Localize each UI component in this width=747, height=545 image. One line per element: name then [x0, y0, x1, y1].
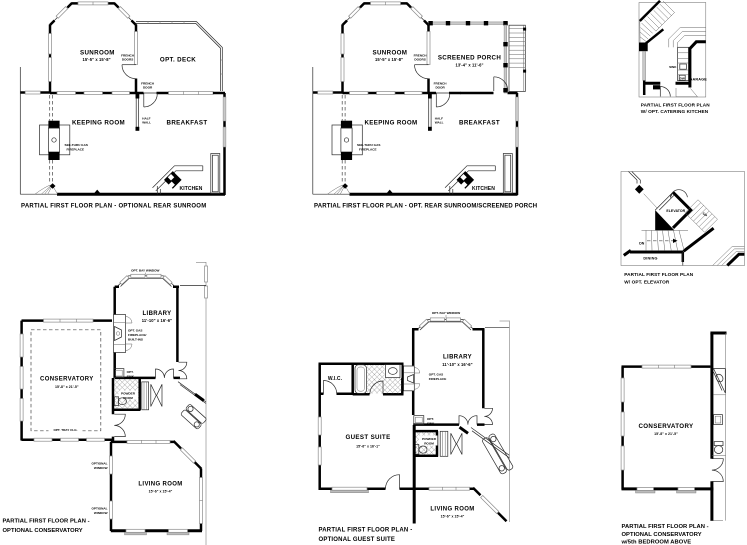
- svg-text:LIVING ROOM: LIVING ROOM: [138, 482, 182, 488]
- svg-text:DINING: DINING: [643, 256, 657, 260]
- svg-text:LIBRARY: LIBRARY: [143, 311, 172, 317]
- svg-text:PARTIAL FIRST FLOOR PLAN: PARTIAL FIRST FLOOR PLAN: [641, 102, 710, 107]
- svg-text:OPT. BAY WINDOW: OPT. BAY WINDOW: [432, 311, 460, 315]
- svg-text:OPT.: OPT.: [427, 417, 434, 421]
- svg-text:SCREENED PORCH: SCREENED PORCH: [438, 55, 502, 62]
- svg-text:DOOR: DOOR: [143, 85, 153, 89]
- svg-text:FIREPLACE: FIREPLACE: [67, 148, 85, 152]
- svg-text:WINDOW: WINDOW: [94, 466, 108, 470]
- svg-text:OPT. DECK: OPT. DECK: [160, 57, 196, 64]
- svg-text:PARTIAL FIRST FLOOR PLAN -: PARTIAL FIRST FLOOR PLAN -: [319, 528, 413, 534]
- svg-text:ROOM: ROOM: [123, 396, 133, 400]
- svg-text:POWDER: POWDER: [121, 391, 136, 395]
- svg-text:ELEVATOR: ELEVATOR: [666, 209, 685, 213]
- svg-text:WINDOW: WINDOW: [94, 511, 108, 515]
- svg-text:LIBRARY: LIBRARY: [443, 355, 472, 361]
- svg-text:13'-4" x 11'-6": 13'-4" x 11'-6": [455, 62, 483, 67]
- svg-text:GARAGE: GARAGE: [689, 77, 707, 81]
- svg-text:ROOM: ROOM: [424, 441, 434, 445]
- svg-text:PARTIAL FIRST FLOOR PLAN -: PARTIAL FIRST FLOOR PLAN -: [3, 518, 90, 524]
- svg-text:OPTIONAL: OPTIONAL: [92, 507, 108, 511]
- svg-text:OPTIONAL GUEST SUITE: OPTIONAL GUEST SUITE: [319, 537, 396, 543]
- svg-text:W.I.C.: W.I.C.: [328, 376, 343, 382]
- svg-text:CONSERVATORY: CONSERVATORY: [40, 377, 94, 383]
- svg-text:SINK: SINK: [127, 374, 135, 378]
- svg-text:OPTIONAL CONSERVATORY: OPTIONAL CONSERVATORY: [622, 532, 702, 538]
- svg-text:KITCHEN: KITCHEN: [180, 186, 203, 192]
- svg-text:SINK: SINK: [669, 65, 677, 69]
- svg-text:15'-6" x 15'-4": 15'-6" x 15'-4": [149, 490, 173, 494]
- svg-text:FIREPLACE/: FIREPLACE/: [128, 333, 147, 337]
- svg-text:11'-10" x 16'-6": 11'-10" x 16'-6": [442, 362, 472, 367]
- svg-text:CONSERVATORY: CONSERVATORY: [638, 423, 694, 430]
- svg-text:w/5th BEDROOM ABOVE: w/5th BEDROOM ABOVE: [621, 539, 692, 545]
- svg-text:PARTIAL FIRST FLOOR PLAN: PARTIAL FIRST FLOOR PLAN: [624, 272, 693, 277]
- svg-text:DOORS: DOORS: [122, 58, 133, 62]
- svg-text:BUILT-INS: BUILT-INS: [128, 338, 143, 342]
- svg-text:15'-8" x 21'-5": 15'-8" x 21'-5": [654, 432, 678, 436]
- svg-text:15'-8" x 21'-5": 15'-8" x 21'-5": [55, 385, 79, 389]
- svg-text:PARTIAL FIRST FLOOR PLAN - OPT: PARTIAL FIRST FLOOR PLAN - OPTIONAL REAR…: [21, 203, 206, 209]
- svg-text:SINK: SINK: [427, 421, 435, 425]
- svg-text:11'-10" x 16'-6": 11'-10" x 16'-6": [142, 318, 172, 323]
- svg-text:OPTIONAL CONSERVATORY: OPTIONAL CONSERVATORY: [3, 528, 83, 534]
- svg-text:OPT. GAS: OPT. GAS: [429, 373, 443, 377]
- svg-text:15'-6" x 16'-1": 15'-6" x 16'-1": [356, 444, 380, 448]
- svg-text:PARTIAL FIRST FLOOR PLAN - OPT: PARTIAL FIRST FLOOR PLAN - OPT. REAR SUN…: [314, 203, 537, 209]
- svg-text:W/ OPT. CATERING KITCHEN: W/ OPT. CATERING KITCHEN: [641, 109, 709, 114]
- svg-text:PARTIAL FIRST FLOOR PLAN -: PARTIAL FIRST FLOOR PLAN -: [622, 524, 709, 530]
- svg-text:SEE-THRU GAS: SEE-THRU GAS: [65, 143, 88, 147]
- svg-text:SUNROOM: SUNROOM: [80, 50, 115, 57]
- svg-text:OPT. BAY WINDOW: OPT. BAY WINDOW: [131, 269, 159, 273]
- svg-text:15'-5" x 15'-8": 15'-5" x 15'-8": [82, 57, 110, 62]
- svg-text:WALL: WALL: [142, 121, 151, 125]
- svg-text:GUEST SUITE: GUEST SUITE: [345, 434, 390, 441]
- svg-text:15'-6" x 15'-4": 15'-6" x 15'-4": [441, 514, 465, 518]
- svg-text:W/ OPT. ELEVATOR: W/ OPT. ELEVATOR: [624, 280, 670, 285]
- svg-text:DW: DW: [680, 76, 685, 80]
- svg-text:LIVING ROOM: LIVING ROOM: [430, 507, 474, 513]
- svg-text:OPTIONAL: OPTIONAL: [92, 461, 108, 465]
- svg-text:DN: DN: [639, 241, 645, 245]
- svg-text:OPT.: OPT.: [127, 370, 134, 374]
- svg-text:OPT. TRAY CLG.: OPT. TRAY CLG.: [53, 428, 77, 432]
- svg-text:FIREPLACE: FIREPLACE: [429, 377, 447, 381]
- svg-text:KEEPING ROOM: KEEPING ROOM: [72, 119, 125, 126]
- svg-text:POWDER: POWDER: [422, 437, 437, 441]
- svg-text:BREAKFAST: BREAKFAST: [167, 119, 208, 126]
- svg-text:OPT. GAS: OPT. GAS: [128, 329, 142, 333]
